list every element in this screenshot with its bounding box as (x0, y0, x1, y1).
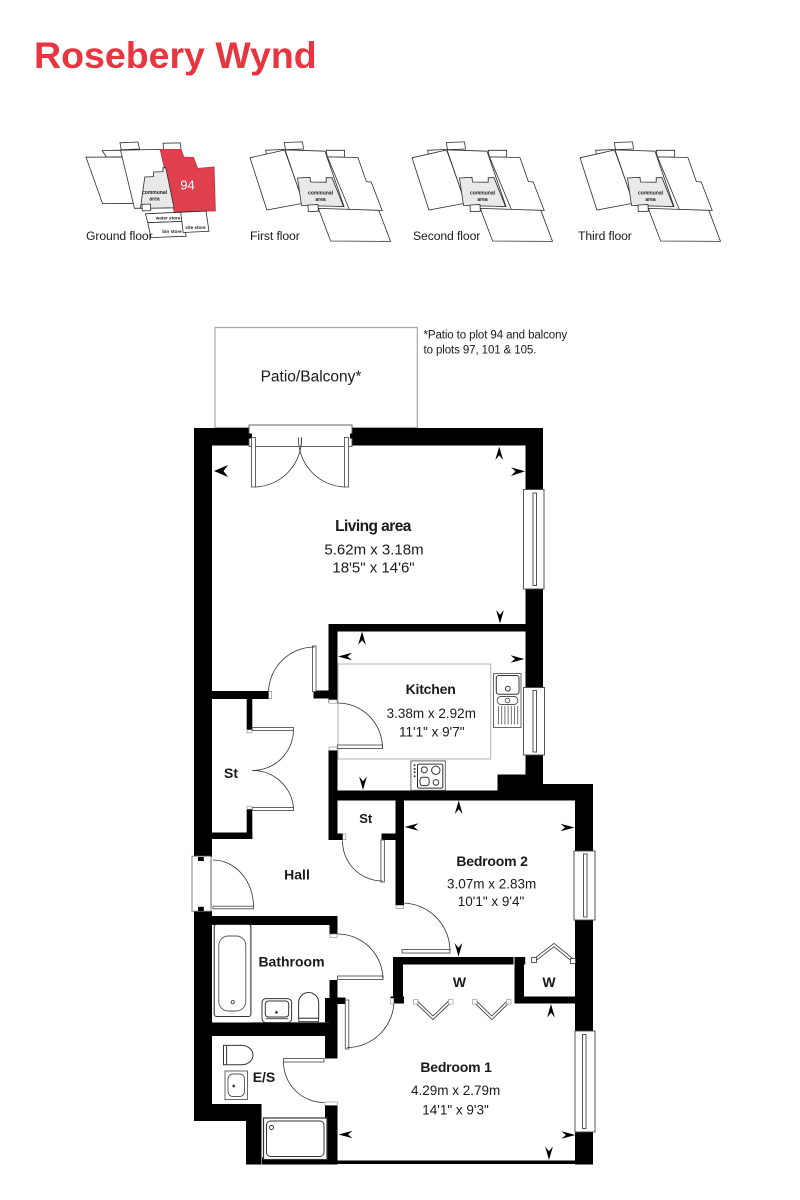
svg-text:Bathroom: Bathroom (258, 954, 324, 970)
svg-text:5.62m x 3.18m: 5.62m x 3.18m (324, 542, 423, 559)
svg-text:site store: site store (185, 225, 206, 230)
svg-text:Hall: Hall (284, 867, 310, 883)
svg-text:Rosebery Wynd: Rosebery Wynd (34, 34, 317, 76)
svg-text:3.38m x 2.92m: 3.38m x 2.92m (387, 706, 476, 721)
svg-text:area: area (645, 197, 656, 203)
svg-text:4.29m x 2.79m: 4.29m x 2.79m (411, 1083, 500, 1098)
svg-text:Kitchen: Kitchen (406, 681, 456, 697)
svg-text:communal: communal (638, 191, 664, 197)
svg-text:St: St (359, 811, 373, 826)
svg-text:18'5" x 14'6": 18'5" x 14'6" (332, 560, 414, 577)
svg-text:Patio/Balcony*: Patio/Balcony* (261, 369, 362, 386)
svg-text:communal: communal (142, 190, 168, 196)
svg-text:area: area (149, 197, 160, 203)
svg-text:to plots 97, 101 & 105.: to plots 97, 101 & 105. (424, 345, 537, 357)
svg-text:communal: communal (308, 191, 334, 197)
svg-text:First floor: First floor (250, 229, 300, 243)
svg-text:*Patio to plot 94 and balcony: *Patio to plot 94 and balcony (424, 330, 568, 342)
svg-text:bin store: bin store (162, 229, 182, 234)
svg-text:area: area (477, 197, 488, 203)
svg-text:Bedroom 1: Bedroom 1 (420, 1059, 492, 1075)
svg-text:Living area: Living area (335, 518, 412, 535)
svg-text:area: area (315, 197, 326, 203)
svg-text:W: W (542, 974, 556, 990)
svg-text:E/S: E/S (253, 1069, 276, 1085)
svg-text:St: St (224, 765, 238, 781)
svg-text:water store: water store (155, 216, 181, 221)
svg-text:Bedroom 2: Bedroom 2 (456, 853, 528, 869)
svg-text:Ground floor: Ground floor (86, 229, 153, 243)
svg-text:communal: communal (470, 191, 496, 197)
svg-text:10'1" x 9'4": 10'1" x 9'4" (458, 894, 525, 909)
svg-text:14'1" x 9'3": 14'1" x 9'3" (422, 1103, 489, 1118)
svg-text:94: 94 (180, 178, 194, 193)
svg-text:11'1" x 9'7": 11'1" x 9'7" (399, 725, 465, 740)
svg-text:Third floor: Third floor (578, 229, 632, 243)
svg-text:Second floor: Second floor (413, 229, 480, 243)
svg-text:W: W (453, 974, 467, 990)
svg-text:3.07m x 2.83m: 3.07m x 2.83m (447, 877, 536, 892)
